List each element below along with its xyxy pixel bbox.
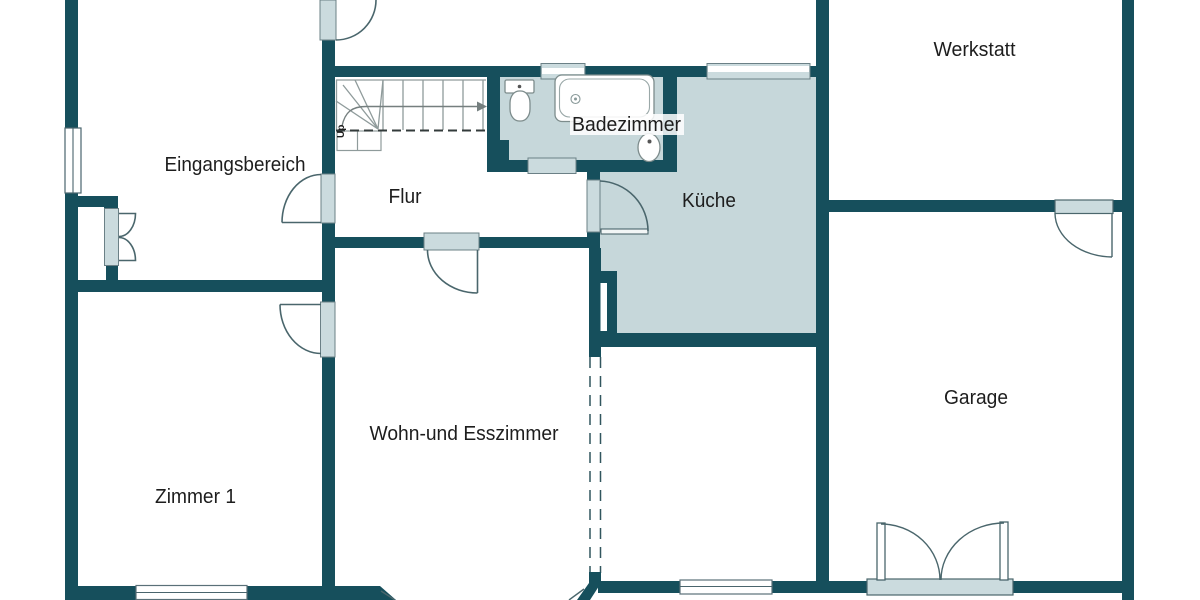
svg-text:Eingangsbereich: Eingangsbereich	[165, 154, 306, 176]
svg-text:Garage: Garage	[944, 387, 1008, 409]
svg-text:Badezimmer: Badezimmer	[572, 114, 681, 136]
svg-text:Flur: Flur	[389, 186, 422, 208]
svg-text:Wohn-und Esszimmer: Wohn-und Esszimmer	[370, 423, 559, 445]
svg-text:Küche: Küche	[682, 190, 736, 212]
svg-text:Zimmer 1: Zimmer 1	[155, 486, 236, 508]
svg-text:Up: Up	[336, 125, 347, 138]
svg-text:Werkstatt: Werkstatt	[934, 39, 1016, 61]
